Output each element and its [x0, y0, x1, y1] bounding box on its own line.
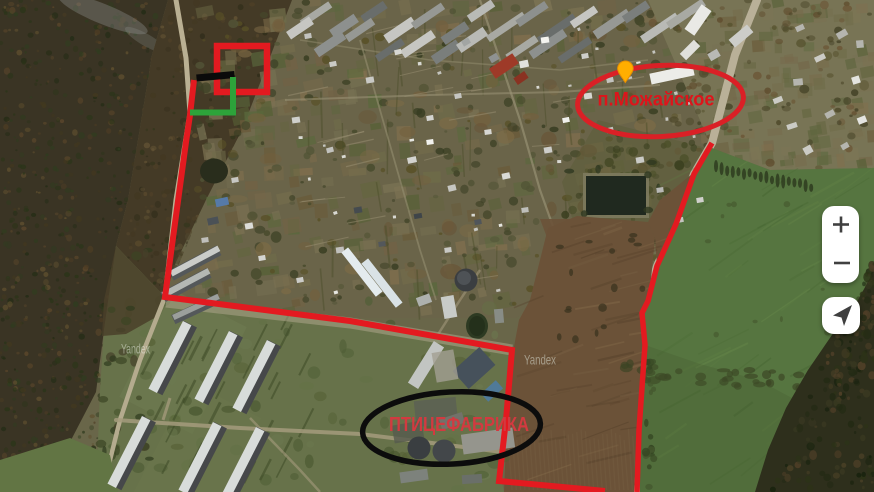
svg-text:Yandex: Yandex	[121, 341, 150, 357]
svg-text:ПТИЦЕФАБРИКА: ПТИЦЕФАБРИКА	[389, 414, 529, 436]
svg-text:Yandex: Yandex	[524, 352, 556, 368]
svg-text:п.Можайское: п.Можайское	[598, 89, 715, 111]
